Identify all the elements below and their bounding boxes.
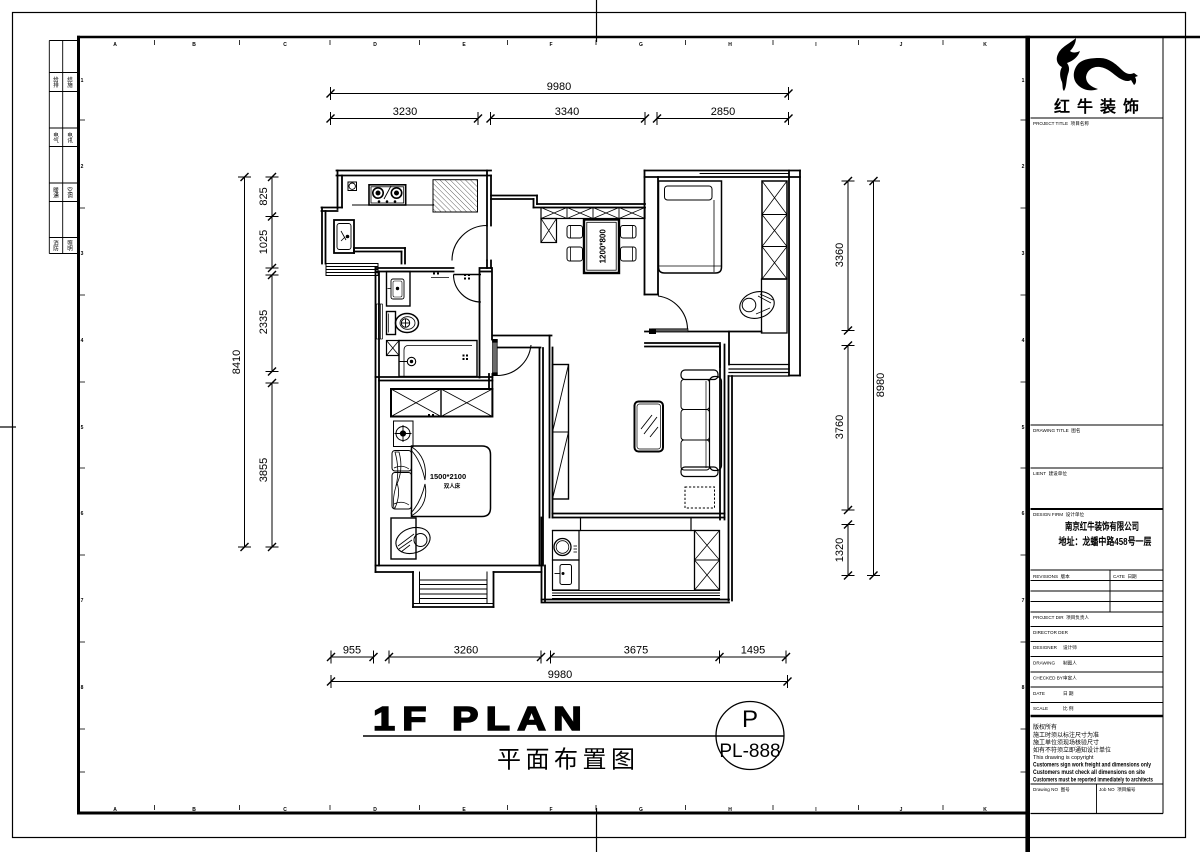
svg-text:如有不符须立即通知设计单位: 如有不符须立即通知设计单位 bbox=[1033, 746, 1111, 754]
svg-text:PL-888: PL-888 bbox=[719, 741, 780, 762]
svg-text:D: D bbox=[373, 807, 377, 813]
svg-text:PROJECT DIR 项目负责人: PROJECT DIR 项目负责人 bbox=[1033, 614, 1089, 621]
svg-text:C: C bbox=[283, 807, 287, 813]
svg-text:REVISIONS 版本: REVISIONS 版本 bbox=[1033, 573, 1070, 580]
svg-text:G: G bbox=[639, 807, 643, 813]
svg-text:This drawing is copyright: This drawing is copyright bbox=[1033, 755, 1094, 761]
svg-text:2850: 2850 bbox=[711, 106, 735, 118]
svg-text:J: J bbox=[900, 807, 903, 813]
svg-text:5: 5 bbox=[81, 425, 84, 431]
svg-text:A: A bbox=[113, 42, 117, 48]
svg-text:比 例: 比 例 bbox=[1063, 705, 1074, 712]
svg-text:J: J bbox=[900, 42, 903, 48]
svg-text:8980: 8980 bbox=[875, 373, 887, 397]
svg-text:7: 7 bbox=[1022, 598, 1025, 604]
svg-text:1500*2100: 1500*2100 bbox=[430, 472, 466, 481]
svg-text:7: 7 bbox=[81, 598, 84, 604]
svg-text:3230: 3230 bbox=[393, 106, 417, 118]
svg-text:6: 6 bbox=[81, 511, 84, 517]
svg-text:DATE: DATE bbox=[1033, 691, 1045, 696]
svg-text:施: 施 bbox=[67, 81, 73, 89]
svg-text:F: F bbox=[549, 807, 552, 813]
svg-text:3760: 3760 bbox=[834, 415, 846, 439]
svg-text:2: 2 bbox=[1022, 164, 1025, 170]
svg-text:地址：龙蟠中路458号一层: 地址：龙蟠中路458号一层 bbox=[1059, 535, 1152, 548]
svg-text:2: 2 bbox=[81, 164, 84, 170]
svg-text:施工单位须现场核验尺寸: 施工单位须现场核验尺寸 bbox=[1033, 739, 1099, 747]
svg-text:气: 气 bbox=[53, 136, 59, 144]
svg-text:1F PLAN: 1F PLAN bbox=[373, 700, 589, 737]
svg-text:B: B bbox=[192, 807, 196, 813]
svg-text:3: 3 bbox=[1022, 251, 1025, 257]
svg-text:H: H bbox=[728, 807, 732, 813]
svg-text:1320: 1320 bbox=[834, 538, 846, 562]
svg-text:H: H bbox=[728, 42, 732, 48]
svg-text:Customers must check all dimen: Customers must check all dimensions on s… bbox=[1033, 770, 1146, 776]
svg-text:4: 4 bbox=[1022, 338, 1025, 344]
svg-text:F: F bbox=[549, 42, 552, 48]
svg-text:DRAWING TITLE 图名: DRAWING TITLE 图名 bbox=[1033, 427, 1080, 434]
svg-text:明: 明 bbox=[67, 246, 73, 253]
svg-text:审定人: 审定人 bbox=[1063, 675, 1077, 682]
svg-text:Job NO 项目编号: Job NO 项目编号 bbox=[1099, 786, 1136, 793]
svg-text:5: 5 bbox=[1022, 425, 1025, 431]
svg-text:红牛装饰: 红牛装饰 bbox=[1054, 97, 1146, 116]
svg-text:CHECKED BY: CHECKED BY bbox=[1033, 676, 1063, 681]
svg-text:8: 8 bbox=[81, 685, 84, 691]
svg-text:DIRECTOR DER: DIRECTOR DER bbox=[1033, 630, 1069, 635]
svg-text:C: C bbox=[283, 42, 287, 48]
svg-text:8: 8 bbox=[1022, 685, 1025, 691]
svg-text:1: 1 bbox=[1022, 78, 1025, 84]
svg-text:设计师: 设计师 bbox=[1063, 644, 1077, 651]
svg-text:825: 825 bbox=[258, 187, 270, 205]
svg-text:G: G bbox=[639, 42, 643, 48]
svg-text:D: D bbox=[373, 42, 377, 48]
svg-text:P: P bbox=[742, 706, 758, 733]
svg-text:版权所有: 版权所有 bbox=[1033, 723, 1057, 731]
svg-text:6: 6 bbox=[1022, 511, 1025, 517]
svg-text:A: A bbox=[113, 807, 117, 813]
svg-text:PROJECT TITLE 项目名称: PROJECT TITLE 项目名称 bbox=[1033, 120, 1089, 127]
svg-text:防: 防 bbox=[53, 245, 59, 253]
svg-text:1: 1 bbox=[81, 78, 84, 84]
svg-text:1495: 1495 bbox=[741, 645, 765, 657]
svg-text:4: 4 bbox=[81, 338, 84, 344]
svg-text:制图人: 制图人 bbox=[1063, 660, 1077, 667]
svg-text:3260: 3260 bbox=[454, 645, 478, 657]
svg-text:3855: 3855 bbox=[258, 458, 270, 482]
svg-text:1200*800: 1200*800 bbox=[599, 229, 608, 264]
svg-text:Customers sign work freight an: Customers sign work freight and dimensio… bbox=[1033, 763, 1152, 769]
svg-text:施工时须以标注尺寸为准: 施工时须以标注尺寸为准 bbox=[1033, 731, 1099, 739]
svg-text:K: K bbox=[983, 42, 987, 48]
svg-text:3675: 3675 bbox=[624, 645, 648, 657]
svg-text:955: 955 bbox=[343, 645, 361, 657]
svg-text:9980: 9980 bbox=[547, 81, 571, 93]
svg-text:调: 调 bbox=[67, 191, 73, 199]
svg-text:8410: 8410 bbox=[231, 350, 243, 374]
svg-text:3: 3 bbox=[81, 251, 84, 257]
svg-text:通: 通 bbox=[53, 191, 59, 199]
svg-text:B: B bbox=[192, 42, 196, 48]
svg-text:DESIGNER: DESIGNER bbox=[1033, 645, 1058, 650]
svg-text:南京红牛装饰有限公司: 南京红牛装饰有限公司 bbox=[1065, 520, 1139, 533]
svg-text:2335: 2335 bbox=[258, 310, 270, 334]
svg-text:LIENT 建设单位: LIENT 建设单位 bbox=[1033, 470, 1067, 477]
svg-text:DRAWING: DRAWING bbox=[1033, 661, 1055, 666]
svg-text:平面布置图: 平面布置图 bbox=[497, 747, 640, 774]
svg-text:SCALE: SCALE bbox=[1033, 706, 1048, 711]
svg-text:3340: 3340 bbox=[555, 106, 579, 118]
svg-text:排: 排 bbox=[53, 81, 59, 89]
svg-text:9980: 9980 bbox=[548, 669, 572, 681]
svg-text:Customers must be reported imm: Customers must be reported immediately t… bbox=[1033, 778, 1154, 784]
svg-text:讯: 讯 bbox=[67, 136, 73, 144]
svg-text:3360: 3360 bbox=[834, 243, 846, 267]
svg-text:K: K bbox=[983, 807, 987, 813]
svg-text:双人床: 双人床 bbox=[444, 482, 461, 490]
svg-text:DESIGN FIRM 设计单位: DESIGN FIRM 设计单位 bbox=[1033, 511, 1084, 518]
svg-text:1025: 1025 bbox=[258, 230, 270, 254]
